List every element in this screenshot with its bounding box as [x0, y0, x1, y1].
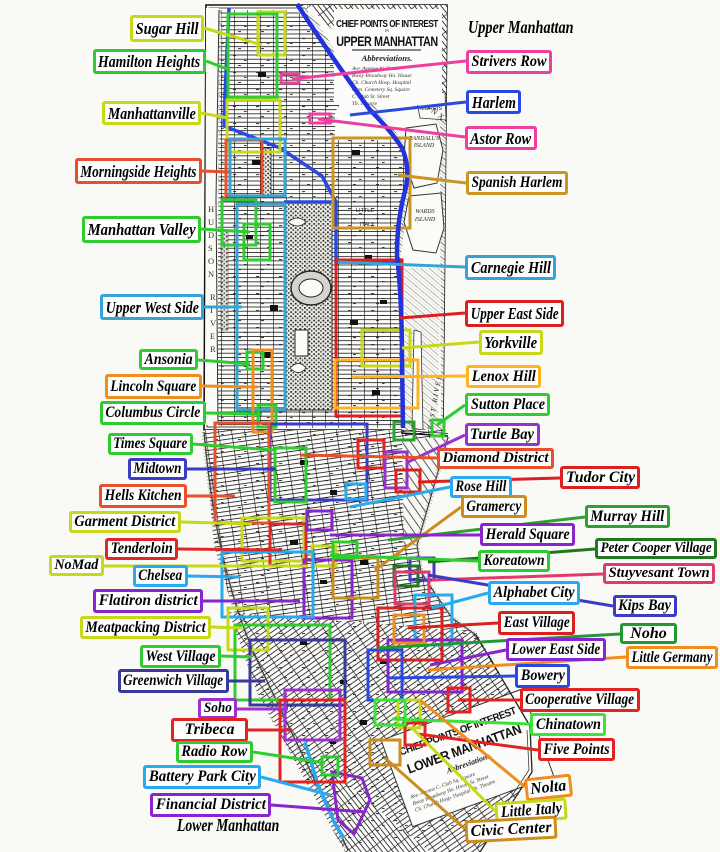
svg-text:H: H	[208, 204, 214, 214]
svg-text:N: N	[208, 269, 214, 279]
svg-text:UPPER MANHATTAN: UPPER MANHATTAN	[336, 34, 438, 49]
svg-text:ISLAND: ISLAND	[413, 143, 435, 149]
svg-text:U: U	[208, 217, 214, 227]
svg-text:O: O	[208, 256, 214, 266]
svg-text:R: R	[210, 344, 216, 354]
svg-text:ISLAND: ISLAND	[414, 217, 436, 223]
svg-text:Cem. Cemetery Sq. Square: Cem. Cemetery Sq. Square	[352, 87, 410, 93]
svg-text:S: S	[208, 243, 213, 253]
svg-text:E: E	[210, 331, 215, 341]
svg-text:V: V	[210, 318, 217, 328]
svg-text:LITTLE: LITTLE	[356, 208, 374, 214]
svg-text:Ch. Church Hosp. Hospita: Ch. Church Hosp. Hospital	[352, 80, 411, 86]
svg-text:D: D	[208, 230, 214, 240]
svg-text:Bway Broadway Ho. House: Bway Broadway Ho. House	[352, 73, 412, 79]
svg-text:Abbreviations.: Abbreviations.	[361, 53, 413, 63]
svg-text:R: R	[210, 292, 216, 302]
svg-text:IN: IN	[385, 28, 389, 34]
svg-text:WARDS: WARDS	[415, 209, 434, 215]
svg-text:RANDALL'S: RANDALL'S	[408, 136, 439, 142]
